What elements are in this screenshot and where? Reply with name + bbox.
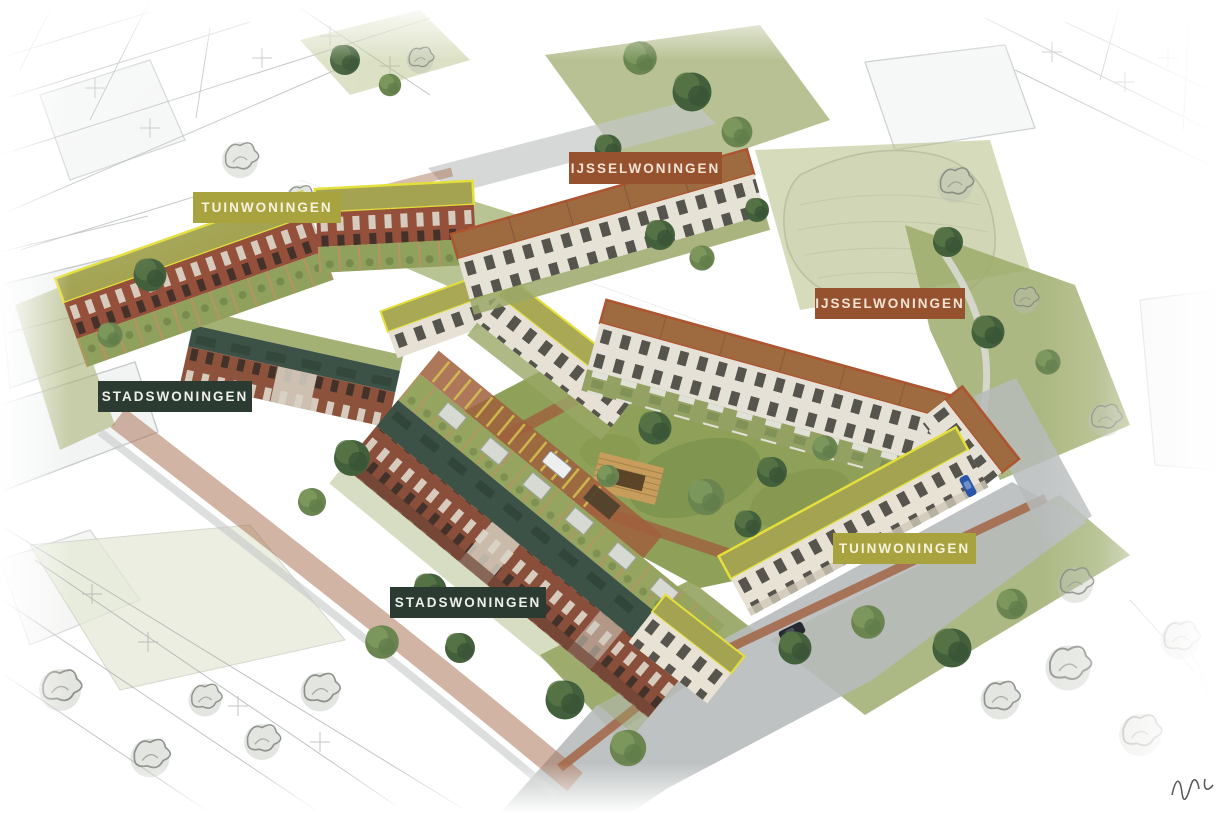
map-label-tuinwoningen-top: TUINWONINGEN bbox=[193, 192, 341, 223]
map-label-text: IJSSELWONINGEN bbox=[815, 296, 965, 311]
map-label-ijsselwoningen-right: IJSSELWONINGEN bbox=[815, 288, 965, 319]
map-label-text: STADSWONINGEN bbox=[102, 389, 249, 404]
map-label-text: TUINWONINGEN bbox=[839, 541, 970, 556]
map-label-stadswoningen-bottom: STADSWONINGEN bbox=[390, 587, 546, 618]
map-label-text: STADSWONINGEN bbox=[395, 595, 542, 610]
masterplan-rendering: TUINWONINGEN IJSSELWONINGEN IJSSELWONING… bbox=[0, 0, 1220, 813]
map-label-tuinwoningen-bottom: TUINWONINGEN bbox=[833, 533, 976, 564]
map-label-text: IJSSELWONINGEN bbox=[571, 161, 721, 176]
map-label-ijsselwoningen-top: IJSSELWONINGEN bbox=[569, 152, 722, 184]
map-label-stadswoningen-left: STADSWONINGEN bbox=[98, 381, 252, 412]
map-label-text: TUINWONINGEN bbox=[201, 200, 332, 215]
